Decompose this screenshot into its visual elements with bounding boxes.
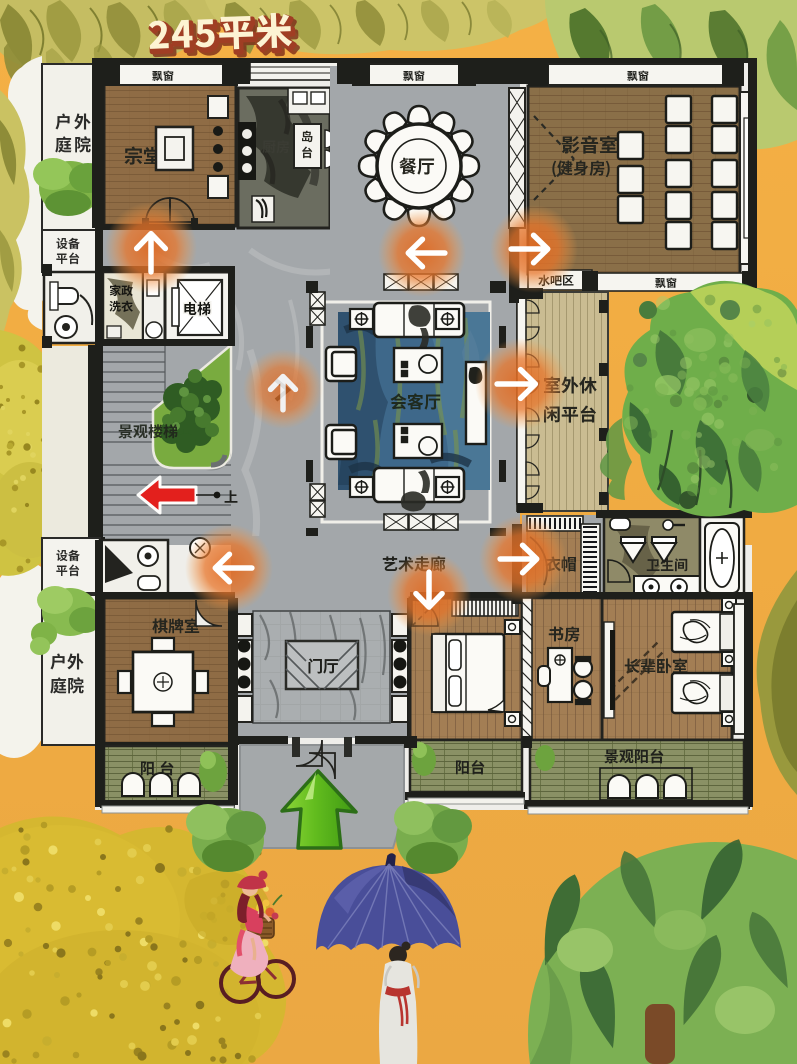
svg-text:景观楼梯: 景观楼梯 bbox=[118, 421, 178, 442]
svg-text:院: 院 bbox=[74, 131, 91, 156]
svg-text:影音室: 影音室 bbox=[561, 131, 618, 158]
svg-text:岛: 岛 bbox=[301, 128, 313, 145]
svg-text:台: 台 bbox=[301, 144, 313, 161]
svg-text:(健身房): (健身房) bbox=[551, 155, 611, 179]
svg-text:庭院: 庭院 bbox=[50, 672, 84, 697]
svg-text:景观阳台: 景观阳台 bbox=[604, 746, 664, 767]
svg-text:厨房: 厨房 bbox=[262, 137, 290, 157]
svg-text:门厅: 门厅 bbox=[307, 653, 339, 677]
svg-text:平台: 平台 bbox=[56, 250, 80, 267]
svg-text:245平米: 245平米 bbox=[147, 1, 294, 60]
svg-text:棋牌室: 棋牌室 bbox=[152, 613, 200, 637]
svg-text:户: 户 bbox=[55, 108, 72, 133]
svg-text:阳台: 阳台 bbox=[455, 757, 485, 778]
svg-text:飘窗: 飘窗 bbox=[152, 68, 174, 84]
svg-text:庭: 庭 bbox=[55, 131, 72, 156]
svg-text:电梯: 电梯 bbox=[183, 299, 211, 319]
svg-text:洗衣: 洗衣 bbox=[109, 298, 134, 315]
svg-text:外: 外 bbox=[74, 108, 91, 133]
svg-text:会客厅: 会客厅 bbox=[390, 388, 441, 413]
svg-text:餐厅: 餐厅 bbox=[399, 153, 435, 179]
svg-text:飘窗: 飘窗 bbox=[403, 68, 425, 84]
svg-text:飘窗: 飘窗 bbox=[627, 68, 649, 84]
svg-text:平台: 平台 bbox=[56, 562, 80, 579]
svg-text:书房: 书房 bbox=[548, 621, 580, 645]
svg-text:上: 上 bbox=[224, 487, 238, 507]
svg-text:户外: 户外 bbox=[50, 648, 84, 673]
svg-text:飘窗: 飘窗 bbox=[655, 275, 677, 291]
